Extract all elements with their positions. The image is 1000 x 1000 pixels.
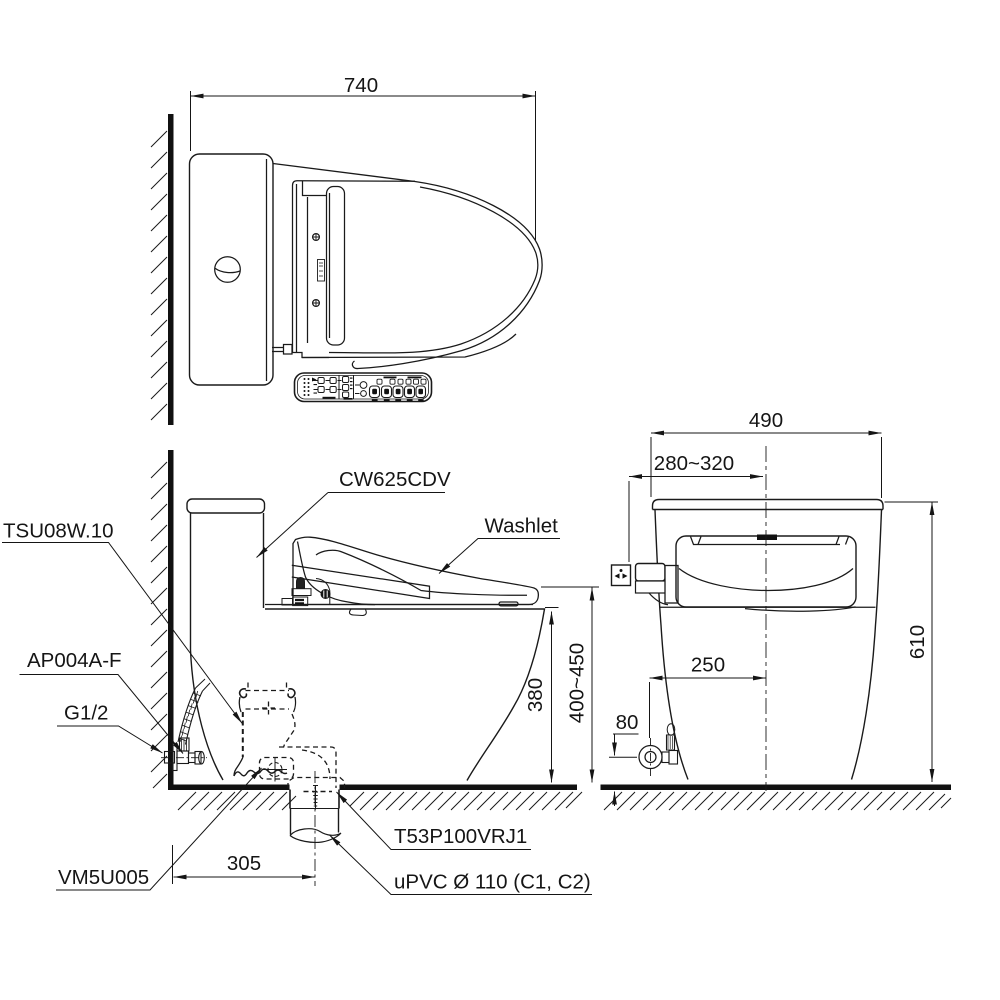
svg-text:80: 80 — [616, 711, 639, 734]
svg-text:280~320: 280~320 — [654, 452, 734, 475]
svg-text:380: 380 — [524, 678, 547, 712]
svg-text:TSU08W.10: TSU08W.10 — [3, 520, 114, 543]
svg-text:490: 490 — [749, 409, 783, 432]
svg-text:305: 305 — [227, 852, 261, 875]
svg-text:CW625CDV: CW625CDV — [339, 468, 451, 491]
svg-text:610: 610 — [906, 625, 929, 659]
svg-text:400~450: 400~450 — [566, 643, 589, 723]
svg-text:250: 250 — [691, 654, 725, 677]
svg-text:VM5U005: VM5U005 — [58, 866, 149, 889]
svg-text:Washlet: Washlet — [485, 515, 559, 538]
svg-text:T53P100VRJ1: T53P100VRJ1 — [394, 825, 527, 848]
svg-text:740: 740 — [344, 74, 378, 97]
svg-text:AP004A-F: AP004A-F — [27, 649, 122, 672]
svg-text:G1/2: G1/2 — [64, 702, 108, 725]
svg-text:uPVC Ø 110 (C1, C2): uPVC Ø 110 (C1, C2) — [394, 871, 591, 894]
